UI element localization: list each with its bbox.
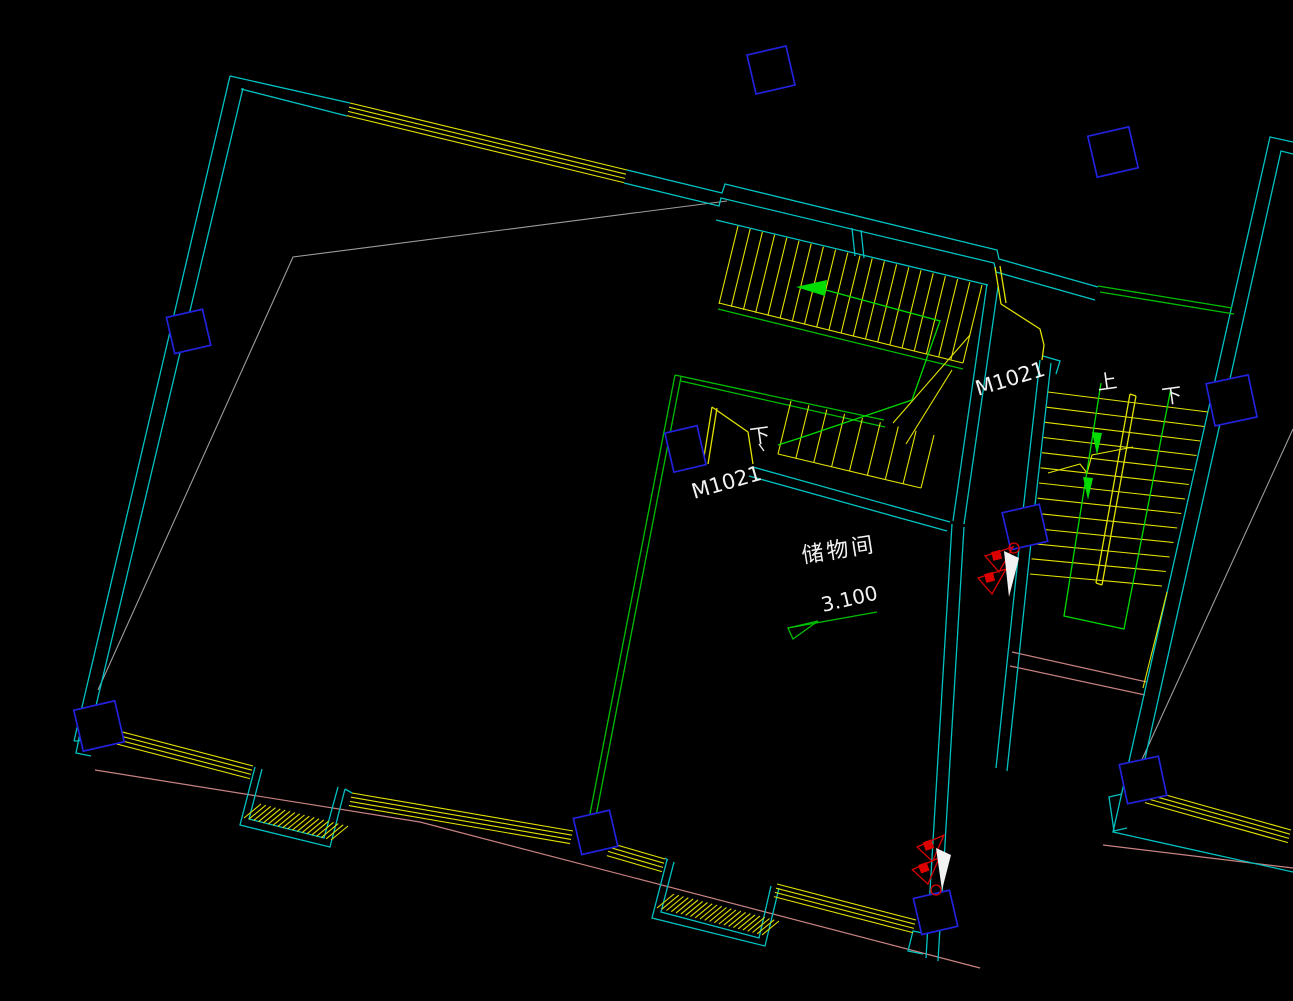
roof-line-right xyxy=(1139,429,1293,766)
right-stair-handrail-cap-bottom xyxy=(1096,583,1102,585)
top-wall-inner-right xyxy=(624,183,1095,300)
up-label: 上 xyxy=(1095,368,1118,395)
column-door-left xyxy=(665,426,706,472)
column-top-free xyxy=(747,46,795,94)
right-building-inner xyxy=(1140,151,1293,789)
fixture-symbol-upper xyxy=(978,543,1019,597)
window-bottom-4-glazing-line xyxy=(775,892,914,928)
door-right-return-wall xyxy=(1043,356,1060,374)
window-top-wall-glazing-line xyxy=(349,107,626,174)
bottom-wall-stub-3 xyxy=(345,789,352,793)
ground-line-right-building xyxy=(1103,845,1293,868)
u-stair-upper-treads xyxy=(719,226,982,363)
ground-line-bottom xyxy=(95,770,980,968)
fixture-white-wedge-lower xyxy=(936,848,951,890)
u-stair-lower-tread xyxy=(814,410,827,463)
windows-layer xyxy=(100,103,1291,933)
u-stair-lower-tread xyxy=(885,427,898,480)
window-bottom-4-glazing-line xyxy=(776,888,915,924)
room-elevation-label: 3.100 xyxy=(819,581,880,617)
elevation-triangle xyxy=(788,621,818,639)
ground-line-stairwell-2 xyxy=(1010,666,1145,695)
column-corridor xyxy=(1002,504,1048,550)
column-right-wall-bottom xyxy=(1119,756,1166,803)
u-stair-lower-tread xyxy=(867,422,880,475)
storage-north-wall-1 xyxy=(753,467,950,522)
column-right-wall-top xyxy=(1206,375,1257,426)
storage-west-wall-1 xyxy=(590,375,675,814)
u-stair-lower-tread xyxy=(832,414,845,467)
u-stair-upper-rail xyxy=(719,303,963,363)
door-right-m1021 xyxy=(995,266,1044,360)
bottom-wall-stub-4 xyxy=(665,858,668,860)
ustair-mid-rail-1 xyxy=(675,375,884,420)
left-wall-inner xyxy=(90,88,243,731)
u-stair-lower-tread xyxy=(778,401,791,454)
window-bottom-1-glazing-line xyxy=(102,731,252,770)
column-bottom-right xyxy=(913,890,957,934)
window-right-building-glazing-line xyxy=(1146,798,1289,838)
window-bottom-2-glazing-line xyxy=(350,801,571,839)
right-stair-handrail-cap-top xyxy=(1130,394,1136,396)
sill-hatch-layer xyxy=(244,804,779,935)
storage-north-wall-2 xyxy=(749,476,947,531)
window-bottom-4-glazing-line xyxy=(777,884,916,920)
u-stair xyxy=(719,226,982,488)
door-left-m1021 xyxy=(703,407,753,464)
column-bottom-mid xyxy=(573,810,617,854)
column-left-wall xyxy=(166,309,210,353)
room-name-label: 储物间 xyxy=(800,532,878,568)
top-wall-inner-left xyxy=(241,89,347,116)
roof-line-main xyxy=(98,201,727,690)
left-wall-outer xyxy=(74,76,230,741)
u-stair-lower-tread xyxy=(850,418,863,471)
landing-divider-1 xyxy=(852,228,855,256)
cad-canvas[interactable]: M1021 M1021 下 上 下 储物间 3.100 xyxy=(0,0,1293,1001)
green-partitions xyxy=(590,286,1234,816)
column-bottom-left xyxy=(74,701,124,751)
window-top-wall-glazing-line xyxy=(347,116,624,183)
u-stair-lower-tread xyxy=(796,405,809,458)
down-label-right: 下 xyxy=(1160,382,1183,409)
window-bottom-3-glazing-line xyxy=(608,851,663,867)
bay-window-1-inner xyxy=(249,769,338,838)
window-top-wall-glazing-line xyxy=(350,103,627,170)
door-left-leaf-2 xyxy=(708,408,717,464)
bay-window-2-inner xyxy=(661,862,771,938)
gap-window-1 xyxy=(1098,286,1232,308)
elevation-marker xyxy=(788,612,877,639)
door-left-swing-arc xyxy=(712,407,753,464)
u-stair-lower-rail xyxy=(778,454,921,488)
right-stair xyxy=(1030,383,1208,688)
landing-divider-2 xyxy=(861,230,864,258)
corridor-east-wall-1 xyxy=(996,360,1040,768)
top-wall-outer-left xyxy=(230,76,350,103)
door-left-label: M1021 xyxy=(689,461,764,504)
window-bottom-4-glazing-line xyxy=(774,897,913,933)
window-right-building-glazing-line xyxy=(1147,794,1290,834)
u-stair-lower-tread xyxy=(921,435,934,488)
right-stair-handrail-1 xyxy=(1096,394,1130,583)
right-stair-path xyxy=(1064,383,1171,629)
window-bottom-3-glazing-line xyxy=(607,856,662,872)
ground-line-stairwell-1 xyxy=(1012,652,1147,682)
door-right-leaf-2 xyxy=(1000,266,1006,303)
window-bottom-3-glazing-line xyxy=(609,847,664,863)
top-wall-outer-right xyxy=(627,170,1098,287)
door-right-swing-arc xyxy=(1001,304,1044,360)
window-top-wall-glazing-line xyxy=(348,111,625,178)
gap-window-2 xyxy=(1100,292,1234,314)
column-topright-free xyxy=(1088,127,1138,177)
cad-viewport[interactable]: M1021 M1021 下 上 下 储物间 3.100 xyxy=(0,0,1293,1001)
